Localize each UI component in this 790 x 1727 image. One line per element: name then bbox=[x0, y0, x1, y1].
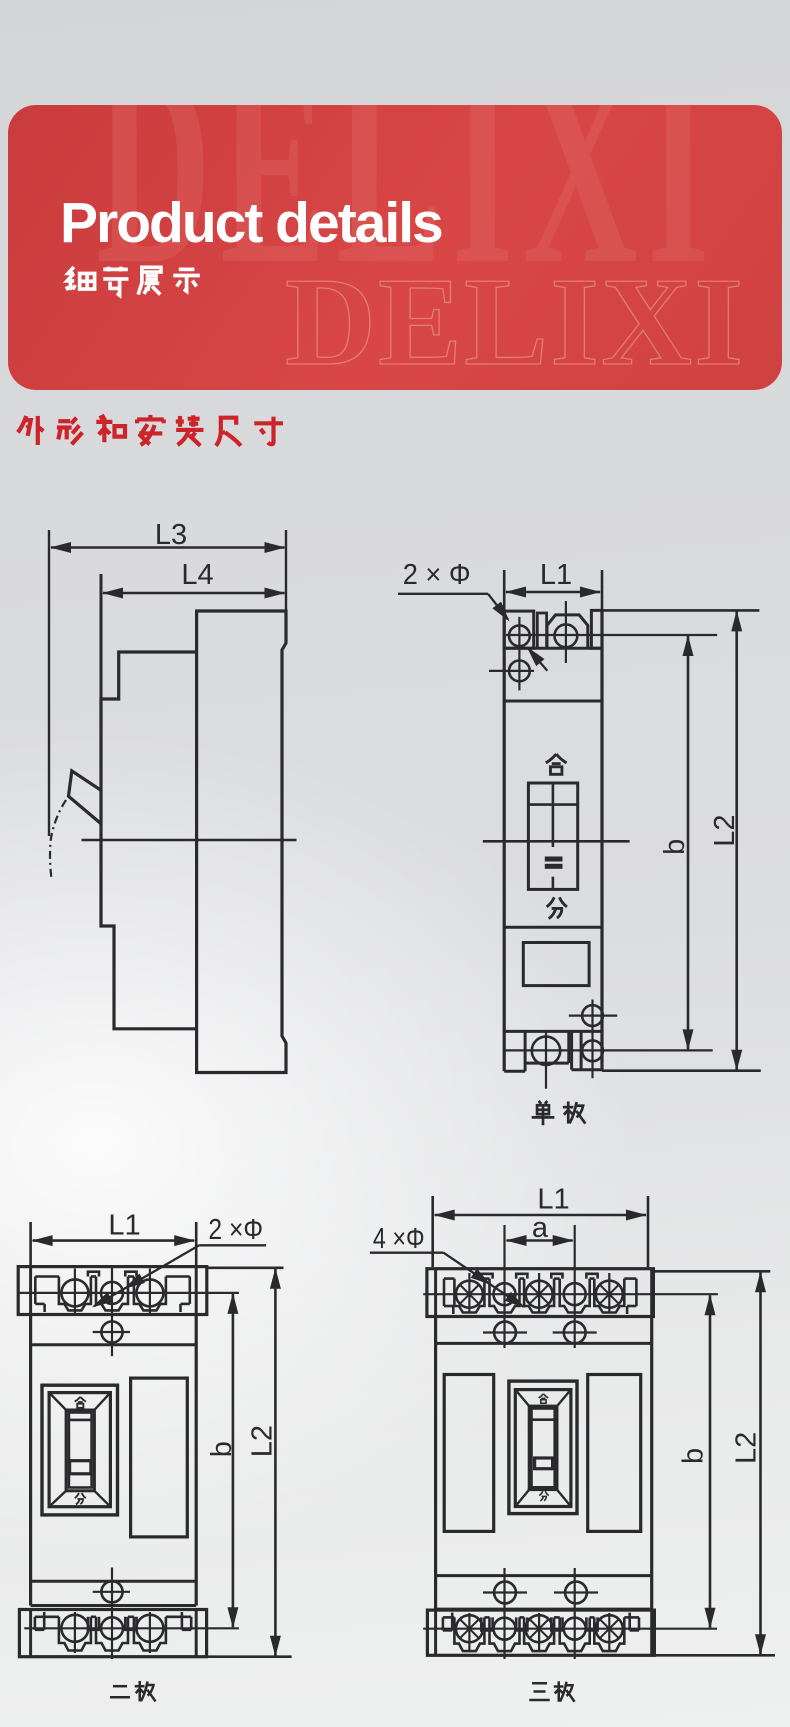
svg-text:L2: L2 bbox=[730, 1432, 762, 1464]
svg-text:b: b bbox=[659, 839, 691, 855]
svg-text:4 ×Φ: 4 ×Φ bbox=[373, 1223, 425, 1255]
svg-text:L1: L1 bbox=[108, 1210, 140, 1242]
svg-text:L4: L4 bbox=[181, 559, 213, 591]
svg-text:2 ×Φ: 2 ×Φ bbox=[208, 1214, 263, 1246]
svg-text:L3: L3 bbox=[155, 519, 187, 551]
svg-text:2 × Φ: 2 × Φ bbox=[403, 559, 471, 591]
svg-text:L2: L2 bbox=[246, 1425, 278, 1457]
svg-text:a: a bbox=[532, 1212, 549, 1244]
svg-text:b: b bbox=[206, 1441, 238, 1457]
svg-text:L2: L2 bbox=[709, 814, 741, 846]
svg-text:b: b bbox=[677, 1448, 709, 1464]
svg-text:L1: L1 bbox=[540, 559, 572, 591]
svg-text:L1: L1 bbox=[537, 1184, 569, 1216]
